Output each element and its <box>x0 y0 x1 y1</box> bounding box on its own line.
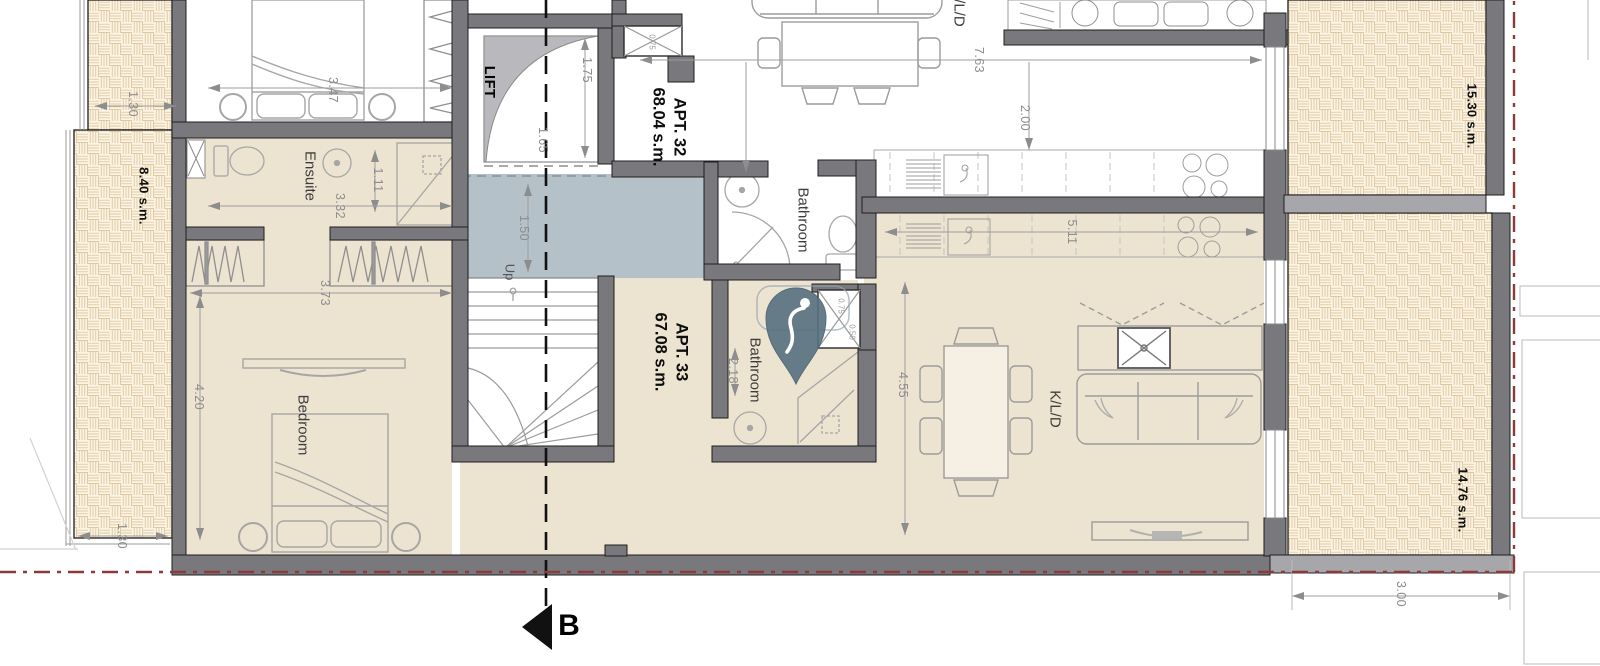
dining-table-apt33 <box>944 346 1008 478</box>
bed-top-left <box>252 0 364 120</box>
section-arrow-icon <box>522 604 552 650</box>
toilet-apt32 <box>829 216 857 252</box>
dining-table-apt32 <box>782 22 918 86</box>
common-landing-floor <box>468 174 704 278</box>
pin-glyph-icon <box>800 298 810 308</box>
floor-plan-drawing <box>0 0 1600 666</box>
dining-set-apt32 <box>752 0 942 104</box>
bedroom-furniture-top-left <box>220 0 395 120</box>
sofa-apt32 <box>752 0 942 18</box>
shower-apt32 <box>732 212 790 270</box>
bathroom-fixtures-apt32 <box>725 173 860 270</box>
floor-plan-canvas: LIFT APT. 32 68.04 s.m. APT. 33 67.08 s.… <box>0 0 1600 666</box>
lift-shaft <box>484 36 598 166</box>
staircase <box>468 278 614 462</box>
